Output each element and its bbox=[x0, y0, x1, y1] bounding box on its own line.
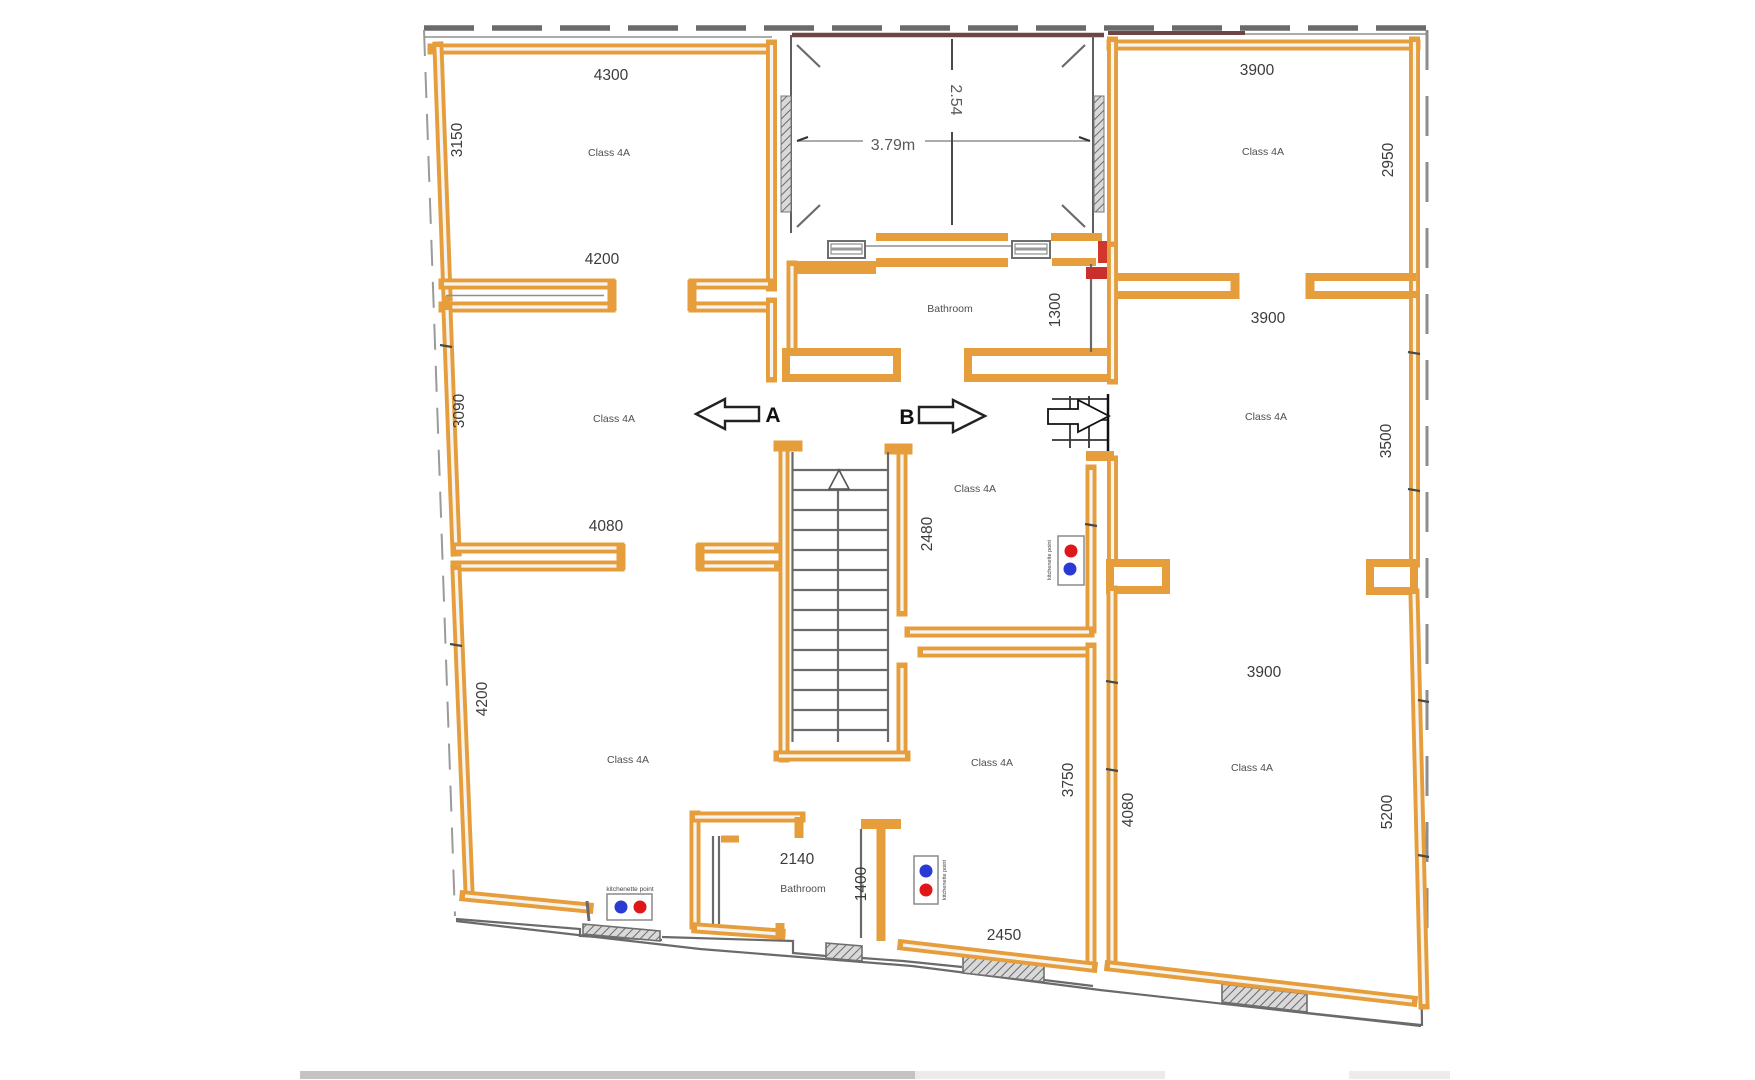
svg-text:3.79m: 3.79m bbox=[871, 137, 915, 154]
svg-text:kitchenette point: kitchenette point bbox=[606, 886, 654, 893]
svg-text:Class 4A: Class 4A bbox=[971, 757, 1013, 769]
svg-text:3150: 3150 bbox=[449, 122, 466, 157]
svg-text:Bathroom: Bathroom bbox=[927, 303, 973, 315]
svg-text:5200: 5200 bbox=[1379, 794, 1396, 829]
svg-text:Bathroom: Bathroom bbox=[780, 883, 826, 895]
svg-text:4200: 4200 bbox=[585, 251, 620, 268]
svg-text:4200: 4200 bbox=[474, 681, 491, 716]
svg-text:2140: 2140 bbox=[780, 851, 815, 868]
svg-text:2.54: 2.54 bbox=[947, 84, 964, 115]
svg-text:3900: 3900 bbox=[1251, 310, 1286, 327]
svg-text:3900: 3900 bbox=[1247, 664, 1282, 681]
svg-text:Class 4A: Class 4A bbox=[593, 413, 635, 425]
svg-text:3500: 3500 bbox=[1378, 423, 1395, 458]
svg-text:2450: 2450 bbox=[987, 927, 1022, 944]
svg-text:Class 4A: Class 4A bbox=[1245, 411, 1287, 423]
svg-text:A: A bbox=[765, 404, 780, 427]
svg-text:3750: 3750 bbox=[1060, 762, 1077, 797]
svg-text:3090: 3090 bbox=[451, 393, 468, 428]
svg-text:4300: 4300 bbox=[594, 67, 629, 84]
svg-text:Class 4A: Class 4A bbox=[588, 147, 630, 159]
svg-text:4080: 4080 bbox=[589, 518, 624, 535]
svg-text:Class 4A: Class 4A bbox=[607, 754, 649, 766]
svg-text:2950: 2950 bbox=[1380, 142, 1397, 177]
svg-text:Class 4A: Class 4A bbox=[954, 483, 996, 495]
svg-text:3900: 3900 bbox=[1240, 62, 1275, 79]
svg-text:1400: 1400 bbox=[853, 866, 870, 901]
svg-text:4080: 4080 bbox=[1120, 792, 1137, 827]
svg-text:Class 4A: Class 4A bbox=[1231, 762, 1273, 774]
svg-text:kitchenette point: kitchenette point bbox=[942, 860, 948, 901]
svg-text:B: B bbox=[899, 406, 914, 429]
svg-text:2480: 2480 bbox=[919, 516, 936, 551]
svg-text:Class 4A: Class 4A bbox=[1242, 146, 1284, 158]
svg-text:kitchenette point: kitchenette point bbox=[1047, 540, 1053, 581]
svg-text:1300: 1300 bbox=[1047, 292, 1064, 327]
